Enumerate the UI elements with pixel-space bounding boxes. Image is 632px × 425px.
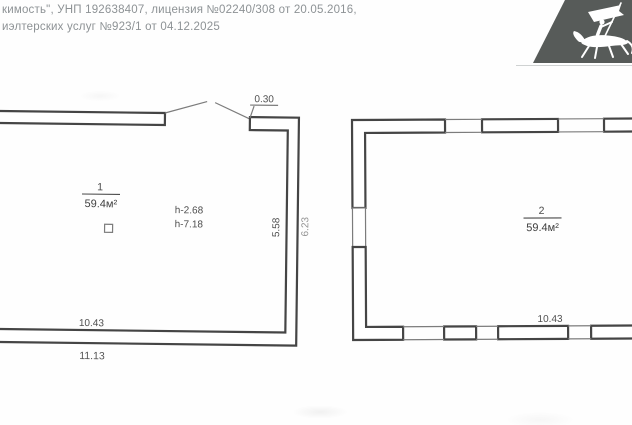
dim-wall-offset: 0.30 — [254, 94, 274, 105]
dim-inner-height: 5.58 — [271, 217, 282, 237]
dim-outer-width-left-plan: 11.13 — [79, 350, 105, 362]
right-plan-bottomleft-corner-wall — [353, 247, 403, 340]
right-plan-top-pier-2 — [482, 119, 558, 132]
right-plan-bottom-pier-4 — [591, 325, 632, 338]
room-2-number: 2 — [539, 205, 545, 217]
opening-slant-line-right — [215, 103, 250, 119]
scanned-document-page: кимость", УНП 192638407, лицензия №02240… — [0, 0, 632, 425]
opening-slant-line-left — [165, 101, 207, 114]
dim-inner-width-right-plan: 10.43 — [538, 314, 564, 325]
left-plan-top-wall — [0, 111, 165, 125]
license-header: кимость", УНП 192638407, лицензия №02240… — [2, 2, 357, 36]
ridge-height-note: h-7.18 — [175, 219, 204, 230]
right-plan-bottom-pier-3 — [498, 326, 568, 339]
agency-logo — [516, 0, 632, 66]
left-plan: 0.30 1 59.4м² h-2.68 h-7.18 5.58 6.23 10… — [0, 91, 313, 365]
ceiling-height-note: h-2.68 — [175, 205, 204, 216]
room-1-feature-square — [105, 224, 113, 232]
right-plan-top-pier-3 — [604, 118, 632, 131]
left-plan-right-and-bottom-wall — [0, 114, 299, 346]
license-line-2: иэлтерских услуг №923/1 от 04.12.2025 — [2, 19, 357, 36]
dim-inner-width-left-plan: 10.43 — [79, 318, 105, 329]
right-plan-topleft-corner-wall — [352, 120, 445, 208]
dim-outer-height: 6.23 — [300, 217, 311, 237]
room-2-area: 59.4м² — [526, 222, 559, 234]
license-line-1: кимость", УНП 192638407, лицензия №02240… — [2, 2, 357, 19]
room-1-area: 59.4м² — [84, 198, 117, 210]
floor-plan-drawing: 0.30 1 59.4м² h-2.68 h-7.18 5.58 6.23 10… — [0, 0, 632, 425]
right-plan-bottom-pier-2 — [444, 326, 476, 339]
right-plan-left-window — [352, 208, 365, 247]
room-1-number: 1 — [97, 181, 103, 193]
right-plan: 2 59.4м² 10.43 — [352, 118, 632, 340]
